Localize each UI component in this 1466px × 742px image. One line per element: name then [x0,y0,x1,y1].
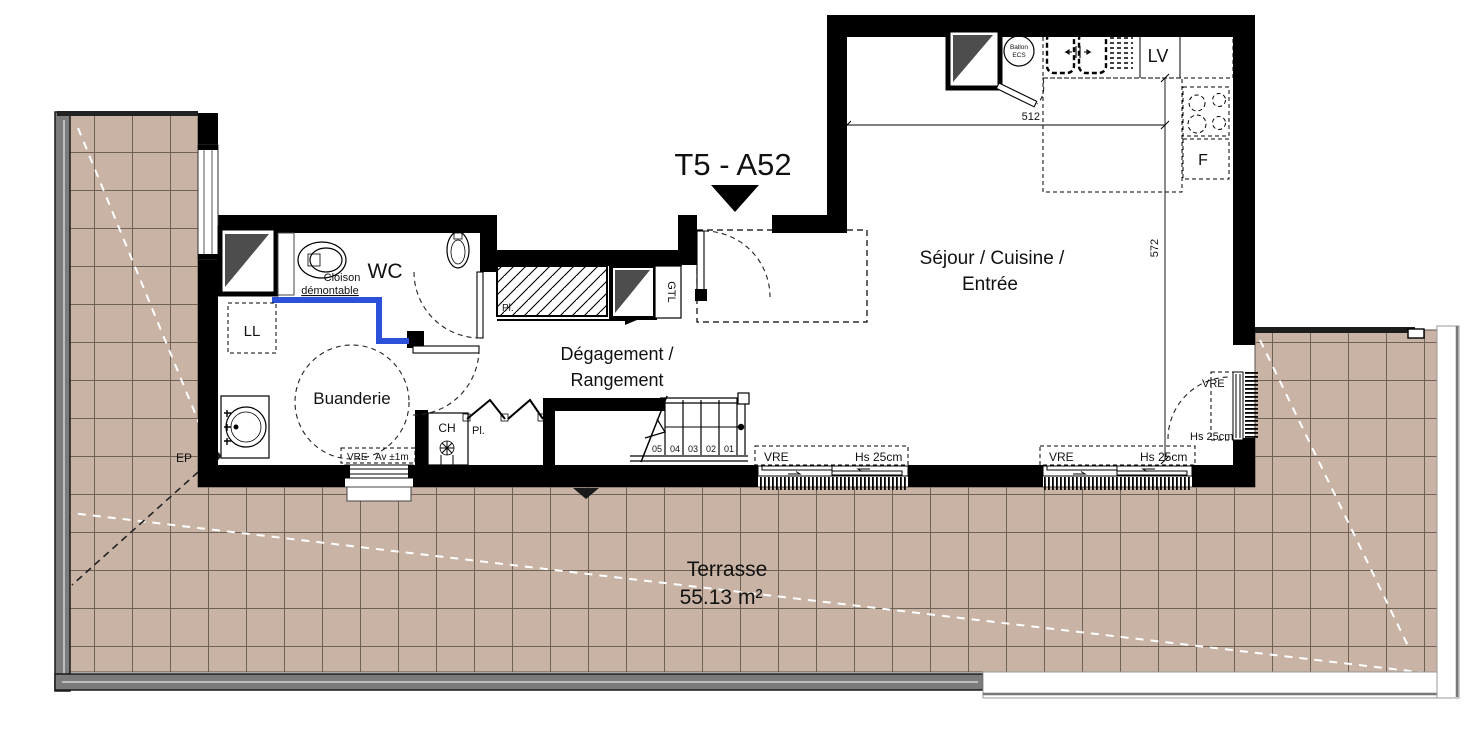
boiler-label: CH [438,421,455,435]
wc-door [414,272,483,338]
svg-text:05: 05 [652,444,662,454]
window2-tag: VRE [1049,450,1074,464]
water-heater-icon [1004,36,1034,66]
buanderie-label: Buanderie [313,389,391,408]
demountable-partition [272,300,409,341]
buanderie-window-tag: VRE [347,452,368,463]
closet-label-2: Pl. [502,303,514,314]
exterior-walls [198,15,1255,487]
buanderie-door [413,346,479,415]
wc-label: WC [368,260,403,283]
cooktop-icon [1183,87,1229,136]
rain-pipe-label: EP [176,451,192,465]
partition-note-1: Cloison [324,272,361,284]
duct-shaft-hall [611,266,655,318]
dishwasher-label: LV [1148,46,1169,66]
degagement-label-1: Dégagement / [560,344,673,364]
entry-door-swing [704,231,770,297]
pier-column [278,233,294,295]
sejour-label-2: Entrée [962,274,1018,295]
svg-text:02: 02 [706,444,716,454]
water-heater-label-2: ECS [1012,52,1026,59]
window2-sill: Hs 25cm [1140,450,1187,464]
folding-doors [463,400,545,421]
window3-sill: Hs 25cm [1190,431,1233,443]
entrance-arrow-icon [711,185,759,212]
degagement-label-2: Rangement [570,370,663,390]
buanderie-window-adjust: Av ±1m [375,452,409,463]
laundry-sink-icon [221,396,269,458]
drainboard-icon [1110,33,1133,68]
entry-door-leaf [697,231,704,297]
svg-text:03: 03 [688,444,698,454]
washbasin-icon [447,232,469,268]
kitchen-door [996,78,1043,107]
floor-plan-page: EP Terrasse 55.13 m² [0,0,1466,742]
terrace-area-label: 55.13 m² [680,586,763,609]
duct-shaft-kitchen [948,30,1000,88]
closet-label-1: Pl. [472,425,485,437]
terrace-label: Terrasse [687,558,768,581]
duct-shaft-wc [220,228,276,294]
entry-zone [695,230,867,322]
window3-tag: VRE [1202,378,1225,390]
terrace-railing-left [55,112,70,691]
west-wall-window [198,145,218,259]
sejour-label-1: Séjour / Cuisine / [920,248,1065,269]
gtl-label: GTL [665,281,677,302]
svg-text:01: 01 [724,444,734,454]
washing-machine-label: LL [244,323,261,340]
window1-tag: VRE [764,450,789,464]
partition-note-2: démontable [301,285,359,297]
plan-title: T5 - A52 [674,147,791,182]
water-heater-label-1: Ballon [1010,44,1028,51]
dimension-572-label: 572 [1149,239,1161,257]
stair-step-numbers: 05 04 03 02 01 [652,444,734,454]
fridge-label: F [1198,152,1208,169]
window1-sill: Hs 25cm [855,450,902,464]
floor-plan-svg: EP Terrasse 55.13 m² [0,0,1466,742]
terrace-top-edge [57,111,198,116]
dimension-572 [1161,74,1169,464]
sink-basin-2 [1079,32,1106,73]
dimension-512-label: 512 [1022,111,1040,123]
dimension-512 [843,121,1169,129]
svg-text:04: 04 [670,444,680,454]
